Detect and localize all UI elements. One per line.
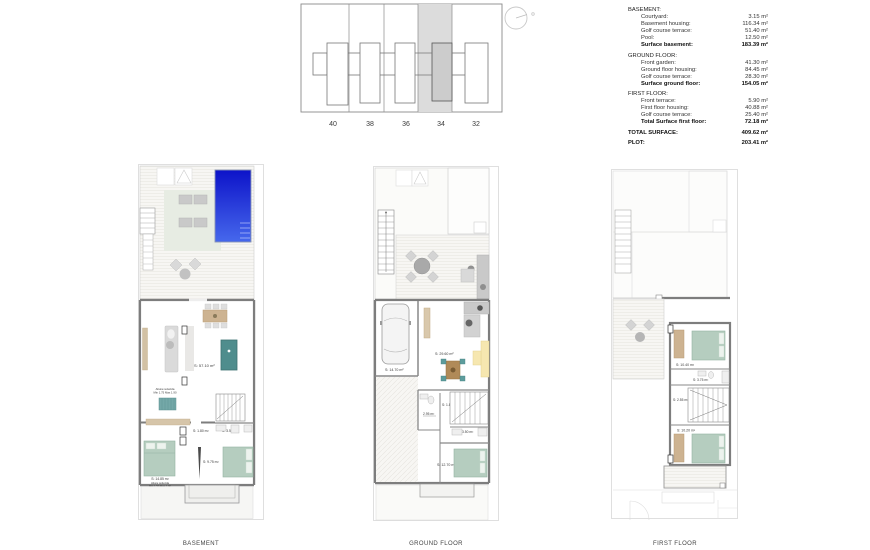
row-label: Pool: bbox=[628, 35, 654, 42]
architectural-plan-sheet: 40 38 36 34 32 BASEMENT: Courtyard:3.15 … bbox=[0, 0, 870, 550]
area-label: S: 1.80 m² bbox=[193, 429, 210, 433]
table-total-row: Surface ground floor:154.05 m² bbox=[628, 81, 768, 88]
pillow bbox=[157, 443, 166, 449]
area-label: S: 2.55 m² bbox=[673, 398, 689, 402]
plan-title-ground-floor: GROUND FLOOR bbox=[372, 541, 500, 547]
table-total-row: Surface basement:183.39 m² bbox=[628, 42, 768, 49]
area-summary-table: BASEMENT: Courtyard:3.15 m² Basement hou… bbox=[628, 7, 768, 147]
wardrobe bbox=[674, 434, 684, 462]
table-row: Ground floor housing:84.45 m² bbox=[628, 67, 768, 74]
area-label: S: 3.75 m² bbox=[693, 378, 709, 382]
row-value: 203.41 m² bbox=[742, 140, 768, 147]
car bbox=[380, 304, 411, 364]
area-label: S: 10.20 m² bbox=[677, 429, 696, 433]
row-label: Front terrace: bbox=[628, 98, 676, 105]
plan-title-basement: BASEMENT bbox=[137, 541, 265, 547]
terrace-deck bbox=[396, 235, 489, 300]
area-label: S: 14.85 m² bbox=[151, 477, 169, 481]
table-row: First floor housing:40.88 m² bbox=[628, 105, 768, 112]
row-label: PLOT: bbox=[628, 140, 645, 147]
wardrobe bbox=[674, 330, 684, 358]
row-label: Golf course terrace: bbox=[628, 74, 692, 81]
site-plan: 40 38 36 34 32 bbox=[300, 3, 505, 131]
column-marker bbox=[668, 455, 673, 463]
row-value: 3.15 m² bbox=[748, 14, 768, 21]
pillow bbox=[246, 449, 252, 460]
table-section-basement: BASEMENT: Courtyard:3.15 m² Basement hou… bbox=[628, 7, 768, 50]
plot-number: 32 bbox=[472, 121, 480, 128]
note-label: Altura reducida bbox=[151, 481, 170, 485]
table-row: Front garden:41.30 m² bbox=[628, 60, 768, 67]
table-total-row: Total Surface first floor:72.18 m² bbox=[628, 119, 768, 126]
row-value: 84.45 m² bbox=[745, 67, 768, 74]
terrace-table bbox=[414, 258, 430, 274]
side-table bbox=[166, 341, 174, 349]
row-value: 5.90 m² bbox=[748, 98, 768, 105]
pillow bbox=[719, 436, 724, 447]
internal-stairs bbox=[216, 394, 245, 421]
bench bbox=[159, 398, 176, 410]
pool bbox=[215, 170, 251, 242]
table-centerpiece bbox=[213, 314, 217, 318]
terrace-detail bbox=[720, 483, 725, 488]
entry-door-panel bbox=[424, 308, 430, 338]
wardrobe bbox=[146, 419, 190, 425]
entry-step bbox=[420, 484, 474, 497]
pillow bbox=[719, 333, 724, 344]
roof-detail bbox=[713, 220, 726, 232]
pergola bbox=[157, 168, 174, 185]
table-section-first-floor: FIRST FLOOR: Front terrace:5.90 m² First… bbox=[628, 91, 768, 126]
table-section-ground-floor: GROUND FLOOR: Front garden:41.30 m² Grou… bbox=[628, 53, 768, 88]
front-terrace bbox=[664, 466, 726, 488]
row-label: TOTAL SURFACE: bbox=[628, 130, 678, 137]
pillow bbox=[480, 463, 485, 473]
row-value: 28.30 m² bbox=[745, 74, 768, 81]
pillow bbox=[146, 443, 155, 449]
plot-number: 38 bbox=[366, 121, 374, 128]
plot-row: PLOT:203.41 m² bbox=[628, 140, 768, 147]
area-label: S: 10.40 m² bbox=[676, 363, 695, 367]
row-value: 116.34 m² bbox=[742, 21, 768, 28]
ground-floor-plan: S: 14.70 m² S: 29.60 m² S: 1.80 bbox=[372, 165, 500, 522]
sofa-cushion bbox=[167, 329, 175, 339]
pillow bbox=[719, 449, 724, 460]
row-label: Surface ground floor: bbox=[628, 81, 700, 88]
internal-stairs bbox=[450, 392, 488, 424]
row-label: Surface basement: bbox=[628, 42, 693, 49]
internal-stairs bbox=[688, 388, 729, 422]
row-label: First floor housing: bbox=[628, 105, 689, 112]
row-value: 154.05 m² bbox=[742, 81, 768, 88]
pillow bbox=[246, 462, 252, 473]
area-label: S: 12.70 m² bbox=[437, 463, 456, 467]
section-header: BASEMENT: bbox=[628, 7, 768, 14]
row-label: Golf course terrace: bbox=[628, 112, 692, 119]
pillow bbox=[480, 451, 485, 461]
area-label: S: 14.70 m² bbox=[385, 368, 404, 372]
first-floor-plan: S: 10.40 m² S: 3.75 m² S: 2.55 m² S: 10.… bbox=[610, 168, 740, 520]
table-row: Golf course terrace:51.40 m² bbox=[628, 28, 768, 35]
table-row: Front terrace:5.90 m² bbox=[628, 98, 768, 105]
row-label: Basement housing: bbox=[628, 21, 691, 28]
row-label: Ground floor housing: bbox=[628, 67, 697, 74]
pool-table bbox=[221, 340, 237, 370]
area-label: S: 57.10 m² bbox=[194, 363, 215, 368]
basement-plan: S: 57.10 m² Altura reducida Min 1.75 Max… bbox=[137, 163, 265, 521]
row-value: 40.88 m² bbox=[745, 105, 768, 112]
area-label: S: 29.60 m² bbox=[435, 352, 454, 356]
courtyard-lightwell bbox=[185, 485, 239, 503]
row-value: 51.40 m² bbox=[745, 28, 768, 35]
column-marker bbox=[182, 377, 187, 385]
pool-ball bbox=[228, 350, 231, 353]
green-deck bbox=[164, 190, 221, 251]
table-row: Golf course terrace:28.30 m² bbox=[628, 74, 768, 81]
side-patio bbox=[376, 377, 418, 482]
row-label: Golf course terrace: bbox=[628, 28, 692, 35]
column-marker bbox=[180, 427, 186, 435]
north-indicator-icon bbox=[502, 4, 542, 36]
row-label: Front garden: bbox=[628, 60, 676, 67]
plot-number: 40 bbox=[329, 121, 337, 128]
row-label: Total Surface first floor: bbox=[628, 119, 706, 126]
row-label: Courtyard: bbox=[628, 14, 668, 21]
plan-title-first-floor: FIRST FLOOR bbox=[610, 541, 740, 547]
roof-detail bbox=[474, 222, 486, 233]
section-header: FIRST FLOOR: bbox=[628, 91, 768, 98]
terrace-table bbox=[635, 332, 645, 342]
terrace-table bbox=[180, 269, 191, 280]
section-header: GROUND FLOOR: bbox=[628, 53, 768, 60]
area-label: 2.95 m² bbox=[423, 412, 435, 416]
table-row: Courtyard:3.15 m² bbox=[628, 14, 768, 21]
area-label: S: 9.75 m² bbox=[203, 460, 220, 464]
plot-number: 36 bbox=[402, 121, 410, 128]
pillow bbox=[719, 346, 724, 357]
total-surface-row: TOTAL SURFACE:409.62 m² bbox=[628, 130, 768, 137]
exterior-stairs bbox=[615, 210, 631, 273]
plot-number: 34 bbox=[437, 121, 445, 128]
sideboard bbox=[143, 328, 148, 370]
exterior-stairs bbox=[378, 210, 394, 274]
row-value: 183.39 m² bbox=[742, 42, 768, 49]
column-marker bbox=[182, 326, 187, 334]
row-value: 72.18 m² bbox=[745, 119, 768, 126]
pergola bbox=[396, 170, 412, 186]
note-label: Min 1.75 Max 1.90 bbox=[153, 391, 176, 395]
row-value: 409.62 m² bbox=[742, 130, 768, 137]
row-value: 41.30 m² bbox=[745, 60, 768, 67]
column-marker bbox=[668, 325, 673, 333]
column-marker bbox=[180, 437, 186, 445]
table-row: Basement housing:116.34 m² bbox=[628, 21, 768, 28]
